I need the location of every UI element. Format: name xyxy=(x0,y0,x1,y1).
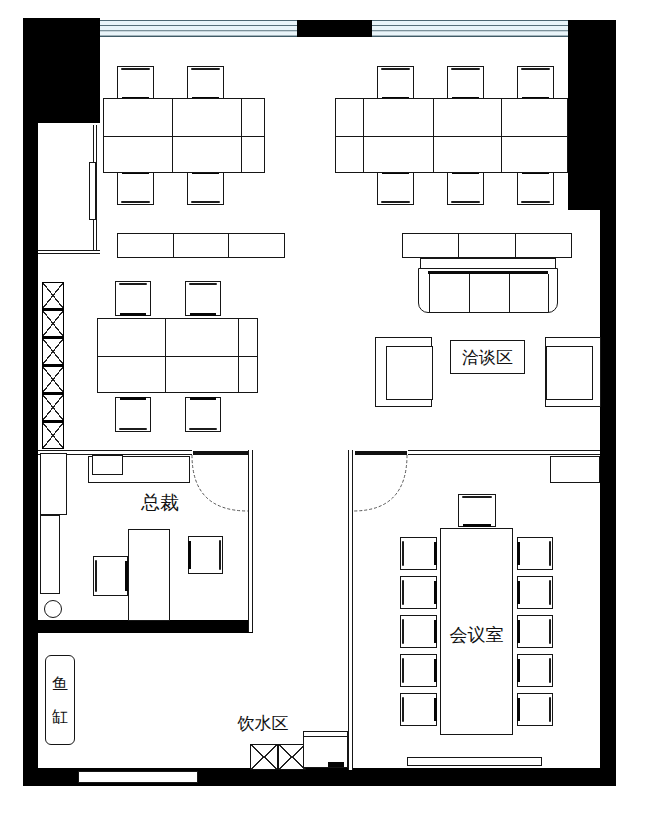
storage-box xyxy=(43,395,63,420)
wall-top-middle xyxy=(297,20,372,37)
wall-meeting-top xyxy=(408,450,600,455)
meeting-chair xyxy=(458,494,496,527)
storage-box xyxy=(43,339,63,364)
window-top-right xyxy=(372,20,568,37)
armchair-left xyxy=(375,337,432,407)
meeting-chair xyxy=(517,576,553,609)
fish-tank: 鱼缸 xyxy=(45,655,75,745)
ceo-desk xyxy=(128,529,170,621)
meeting-chair xyxy=(517,693,553,726)
storage-box xyxy=(278,744,306,770)
office-chair xyxy=(187,66,224,100)
office-chair xyxy=(117,171,154,205)
meeting-chair xyxy=(400,654,437,687)
office-chair xyxy=(185,397,221,432)
sofa xyxy=(418,268,558,313)
office-chair xyxy=(447,66,484,100)
guest-chair xyxy=(188,536,223,574)
meeting-chair xyxy=(400,576,437,609)
office-chair xyxy=(115,397,151,432)
plant-circle xyxy=(44,600,62,618)
office-chair xyxy=(115,281,151,316)
alcove-door-panel xyxy=(89,162,96,220)
meeting-chair xyxy=(517,654,553,687)
office-chair xyxy=(447,171,484,205)
ceo-door-arc xyxy=(192,455,248,511)
meeting-door-arc xyxy=(353,455,407,511)
wall-right xyxy=(600,210,616,786)
wall-meeting-left xyxy=(348,450,353,770)
office-chair xyxy=(187,171,224,205)
meeting-chair xyxy=(400,693,437,726)
window-top-left xyxy=(100,20,297,37)
floor-plan: 洽谈区 总裁 会议室 鱼缸 饮水区 xyxy=(0,0,669,816)
meeting-chair xyxy=(400,537,437,570)
desk-cluster-c xyxy=(97,318,258,393)
meeting-room-text: 会议室 xyxy=(450,623,504,647)
office-chair xyxy=(377,66,414,100)
ceo-cabinet-upper xyxy=(40,453,67,515)
negotiation-area-text: 洽谈区 xyxy=(462,346,513,369)
storage-box xyxy=(43,423,63,448)
wall-ceo-bottom xyxy=(38,620,253,633)
storage-box xyxy=(43,283,63,308)
storage-box xyxy=(250,744,278,770)
low-cabinet-right xyxy=(402,233,572,258)
meeting-door-leaf xyxy=(355,451,407,455)
water-area-text: 饮水区 xyxy=(238,712,289,735)
low-cabinet-left xyxy=(117,233,285,258)
storage-box xyxy=(43,367,63,392)
meeting-chair xyxy=(400,615,437,648)
whiteboard xyxy=(407,757,542,766)
water-dispenser xyxy=(303,731,348,768)
office-chair xyxy=(517,66,554,100)
meeting-cabinet xyxy=(550,456,600,483)
wall-left xyxy=(23,18,38,786)
negotiation-area-label: 洽谈区 xyxy=(450,340,525,374)
wall-top-right-block xyxy=(568,20,616,210)
ceo-door-leaf xyxy=(193,451,248,455)
desk-cluster-a xyxy=(103,98,265,173)
office-chair xyxy=(185,281,221,316)
desk-cluster-b xyxy=(335,98,568,173)
ceo-office-label: 总裁 xyxy=(130,492,190,514)
wall-ceo-right xyxy=(248,450,253,632)
entrance-opening xyxy=(78,771,198,783)
ceo-printer xyxy=(92,455,123,475)
alcove-wall-horizontal xyxy=(38,250,100,254)
ceo-chair xyxy=(93,556,128,596)
office-chair xyxy=(377,171,414,205)
ceo-office-text: 总裁 xyxy=(141,490,179,516)
storage-cabinet-column xyxy=(42,282,64,449)
storage-box xyxy=(43,311,63,336)
office-chair xyxy=(117,66,154,100)
meeting-chair xyxy=(517,615,553,648)
office-chair xyxy=(517,171,554,205)
fish-tank-text: 鱼缸 xyxy=(46,667,74,733)
armchair-right xyxy=(545,337,601,407)
ceo-cabinet-lower xyxy=(40,515,60,594)
meeting-room-label: 会议室 xyxy=(440,624,513,646)
meeting-chair xyxy=(517,537,553,570)
water-area-label: 饮水区 xyxy=(228,713,298,733)
